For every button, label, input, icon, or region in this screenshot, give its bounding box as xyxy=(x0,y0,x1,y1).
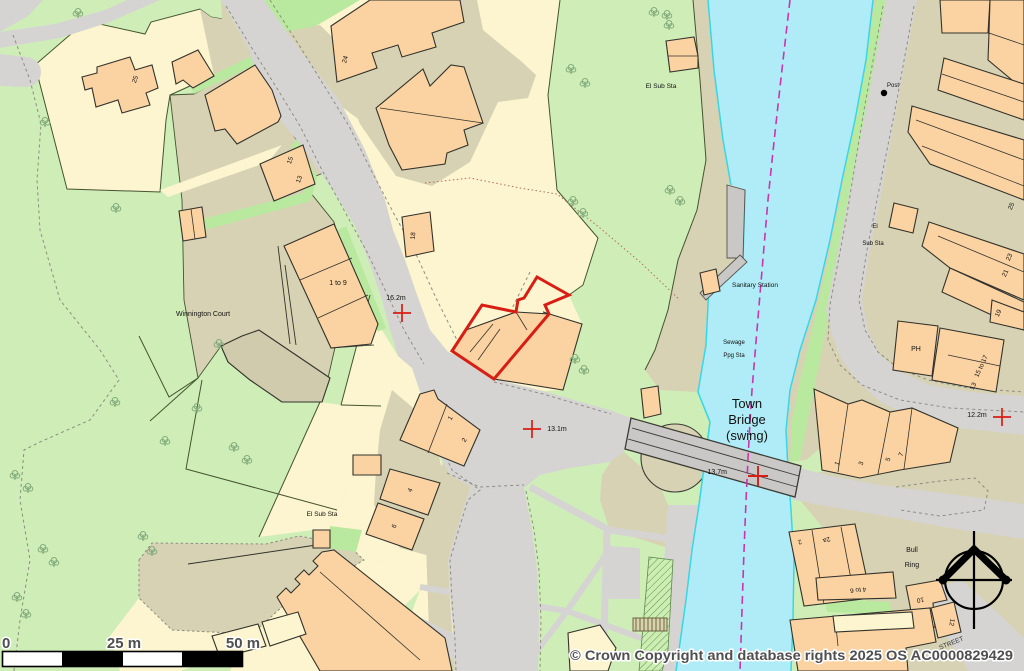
svg-text:25 m: 25 m xyxy=(107,635,141,652)
svg-text:PH: PH xyxy=(911,346,921,353)
svg-text:1 to 9: 1 to 9 xyxy=(329,280,347,287)
svg-text:0: 0 xyxy=(2,635,10,652)
svg-text:Bridge: Bridge xyxy=(728,412,766,427)
svg-text:13.1m: 13.1m xyxy=(547,426,567,433)
svg-text:Post: Post xyxy=(887,83,899,89)
svg-text:13.7m: 13.7m xyxy=(708,469,728,476)
svg-text:El Sub Sta: El Sub Sta xyxy=(646,83,677,90)
svg-text:Sanitary Station: Sanitary Station xyxy=(732,282,778,289)
svg-text:Town: Town xyxy=(732,396,762,411)
svg-text:16.2m: 16.2m xyxy=(386,295,406,302)
svg-text:18: 18 xyxy=(410,232,418,240)
svg-text:(swing): (swing) xyxy=(726,428,768,443)
svg-text:Winnington Court: Winnington Court xyxy=(176,311,230,318)
svg-text:El: El xyxy=(872,224,877,230)
svg-text:Sub Sta: Sub Sta xyxy=(862,241,884,247)
svg-text:Ppg Sta: Ppg Sta xyxy=(723,353,745,359)
svg-text:Ring: Ring xyxy=(905,562,920,569)
svg-text:12.2m: 12.2m xyxy=(967,412,987,419)
svg-text:50 m: 50 m xyxy=(226,635,260,652)
svg-text:El Sub Sta: El Sub Sta xyxy=(307,511,338,518)
svg-text:Sewage: Sewage xyxy=(723,340,745,346)
svg-text:© Crown Copyright and database: © Crown Copyright and database rights 20… xyxy=(570,647,1013,663)
svg-text:4 to 6: 4 to 6 xyxy=(849,585,866,593)
svg-text:Bull: Bull xyxy=(906,547,918,554)
